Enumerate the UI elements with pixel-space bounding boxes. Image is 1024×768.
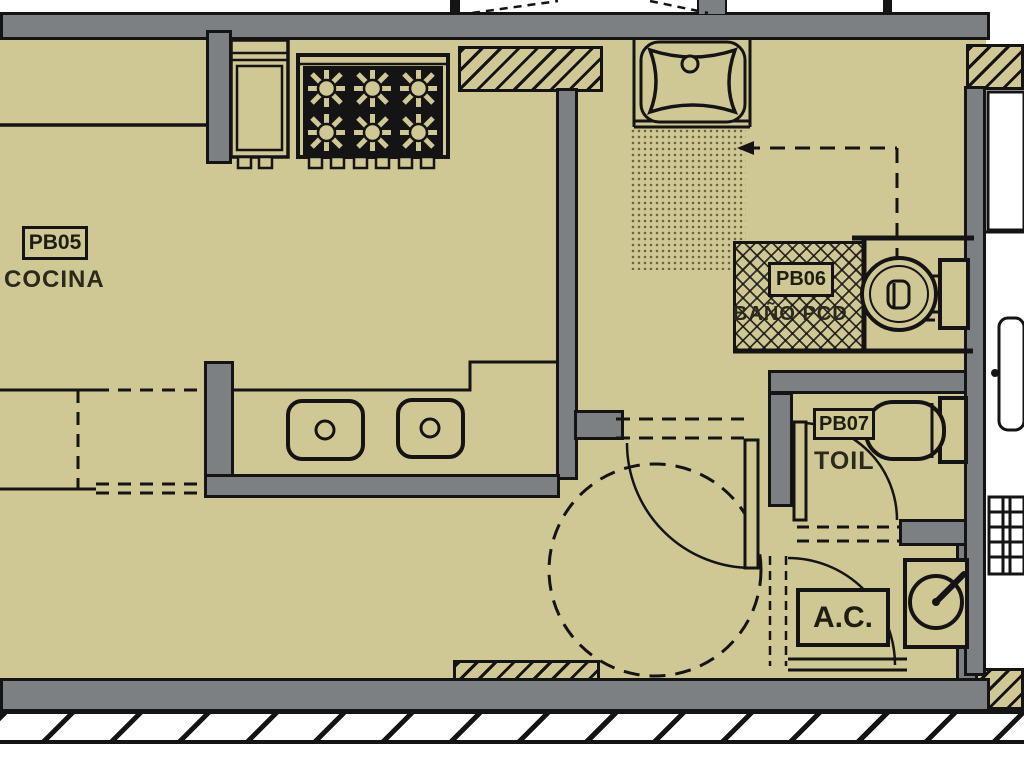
ac-closet-front — [788, 659, 907, 670]
bathroom-sink — [641, 42, 745, 122]
floor-plan: PB05 COCINA PB06 BAÑO PCD PB07 TOIL A.C. — [0, 0, 1024, 768]
plan-graphics — [0, 0, 1024, 768]
bathroom-doorway — [616, 419, 744, 438]
ac-doorway — [797, 527, 899, 541]
kitchen-name: COCINA — [4, 266, 105, 294]
stove — [298, 55, 448, 157]
bathroom-pcd-code-box: PB06 — [768, 262, 834, 297]
toilet-code-box: PB07 — [813, 408, 875, 440]
toilet-pcd — [862, 258, 968, 330]
ac-label-box: A.C. — [796, 588, 890, 647]
kitchen-sink-double — [288, 400, 463, 459]
toilet-name: TOIL — [814, 447, 874, 476]
bathroom-pcd-name: BAÑO PCD — [733, 303, 848, 326]
bathroom-door — [627, 440, 758, 568]
ac-label: A.C. — [813, 601, 873, 635]
turning-circle — [549, 464, 761, 676]
refrigerator-cabinet — [231, 40, 288, 157]
top-strip-details — [450, 0, 892, 13]
kitchen-code: PB05 — [29, 231, 82, 255]
bathroom-pcd-code: PB06 — [776, 268, 826, 291]
kitchen-code-box: PB05 — [22, 226, 88, 260]
adjacent-fixtures — [986, 92, 1024, 574]
appliance-feet — [238, 157, 434, 168]
toilet — [866, 398, 966, 462]
entry-arrow — [737, 141, 754, 155]
kitchen-counter-lines — [0, 125, 556, 493]
toilet-code: PB07 — [819, 413, 869, 436]
water-heater — [905, 560, 967, 647]
